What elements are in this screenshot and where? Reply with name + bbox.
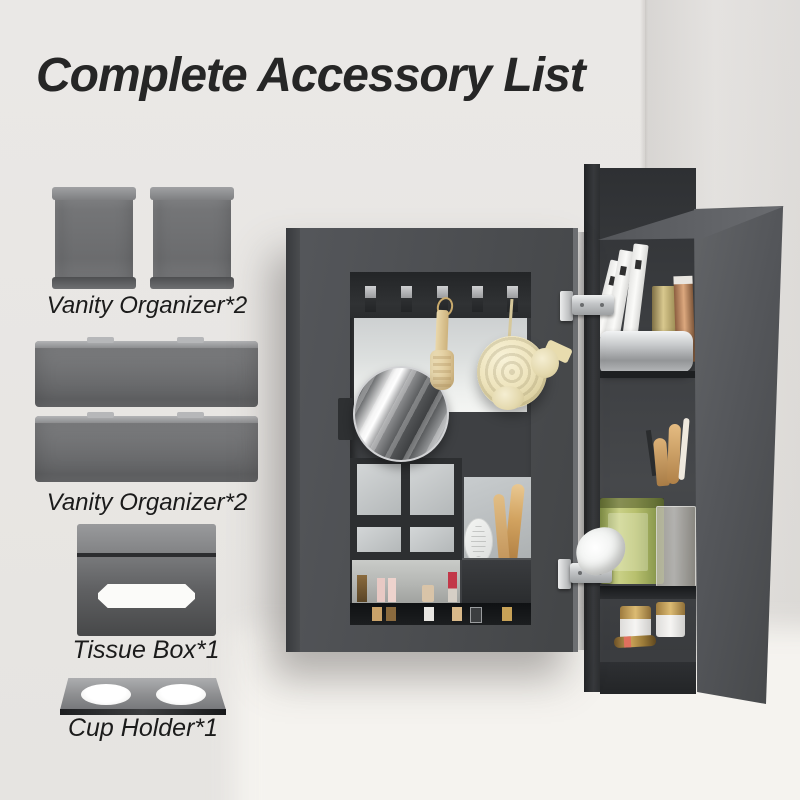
vanity-organizer-box-2 bbox=[153, 187, 231, 289]
compartment-grid bbox=[350, 458, 462, 560]
compartment-panel bbox=[357, 527, 401, 552]
door-pocket bbox=[462, 558, 531, 606]
compartment-panel bbox=[357, 464, 401, 515]
tray-mount-tab bbox=[177, 337, 204, 343]
jar-body bbox=[656, 615, 685, 637]
loofah-sponge-lobe bbox=[492, 386, 524, 410]
hook bbox=[365, 286, 376, 312]
lipstick bbox=[377, 578, 385, 602]
lipstick-band bbox=[624, 636, 632, 647]
shelf-edge-middle bbox=[600, 586, 696, 599]
cabinet-body-interior bbox=[600, 168, 696, 694]
wooden-brush-head bbox=[430, 350, 454, 390]
clear-brush-cup bbox=[656, 506, 696, 590]
compartment-panel bbox=[410, 527, 454, 552]
lipstick bbox=[448, 572, 457, 602]
vanity-organizer-boxes-label: Vanity Organizer*2 bbox=[36, 292, 258, 320]
cup-holder-label: Cup Holder*1 bbox=[50, 714, 236, 743]
tissue-box-lid bbox=[77, 524, 216, 553]
mirror-mount-bracket bbox=[338, 398, 354, 440]
vanity-organizer-trays-label: Vanity Organizer*2 bbox=[36, 489, 258, 517]
hinge-screw bbox=[600, 303, 604, 307]
jar-lid bbox=[656, 602, 685, 615]
vanity-organizer-tray-2 bbox=[35, 416, 258, 482]
cup-holder-hole bbox=[156, 684, 206, 705]
hinge-arm bbox=[572, 295, 614, 315]
lipstick bbox=[357, 575, 367, 602]
tissue-box bbox=[77, 524, 216, 636]
product-image-canvas: Complete Accessory List Vanity Organizer… bbox=[0, 0, 800, 800]
door-bottom-rail bbox=[350, 603, 531, 625]
small-cosmetic bbox=[372, 607, 382, 621]
jar-lid bbox=[620, 606, 651, 619]
hook bbox=[472, 286, 483, 312]
tray-mount-tab bbox=[177, 412, 204, 418]
tray-mount-tab bbox=[87, 412, 114, 418]
wooden-brush-handle bbox=[435, 310, 449, 354]
cup-holder-hole bbox=[81, 684, 131, 705]
tissue-box-opening bbox=[98, 584, 195, 608]
shelf-edge-top bbox=[600, 371, 696, 378]
small-cosmetic bbox=[452, 607, 462, 621]
vanity-organizer-box-1 bbox=[55, 187, 133, 289]
compartment-panel bbox=[410, 464, 454, 515]
small-cosmetic bbox=[502, 607, 512, 621]
hook bbox=[401, 286, 412, 312]
small-cosmetic bbox=[470, 607, 482, 623]
door-hinge-top bbox=[560, 286, 616, 326]
tissue-box-label: Tissue Box*1 bbox=[58, 636, 234, 665]
vanity-organizer-tray-1 bbox=[35, 341, 258, 407]
cup-holder bbox=[60, 674, 226, 718]
hinge-screw bbox=[580, 303, 584, 307]
shelf-edge-bottom bbox=[600, 650, 696, 662]
cosmetic-jar-small bbox=[422, 585, 434, 602]
small-cosmetic bbox=[424, 607, 434, 621]
hinge-screw bbox=[578, 571, 582, 575]
loofah-sponge-lobe bbox=[531, 348, 559, 378]
tray-mount-tab bbox=[87, 337, 114, 343]
lipstick bbox=[388, 578, 396, 602]
small-cosmetic bbox=[386, 607, 396, 621]
lipstick-shelf bbox=[352, 560, 460, 604]
cabinet-body-bottom bbox=[600, 662, 696, 694]
lipstick-lying bbox=[614, 635, 657, 648]
metal-storage-tray bbox=[600, 331, 693, 373]
page-title: Complete Accessory List bbox=[36, 50, 676, 103]
